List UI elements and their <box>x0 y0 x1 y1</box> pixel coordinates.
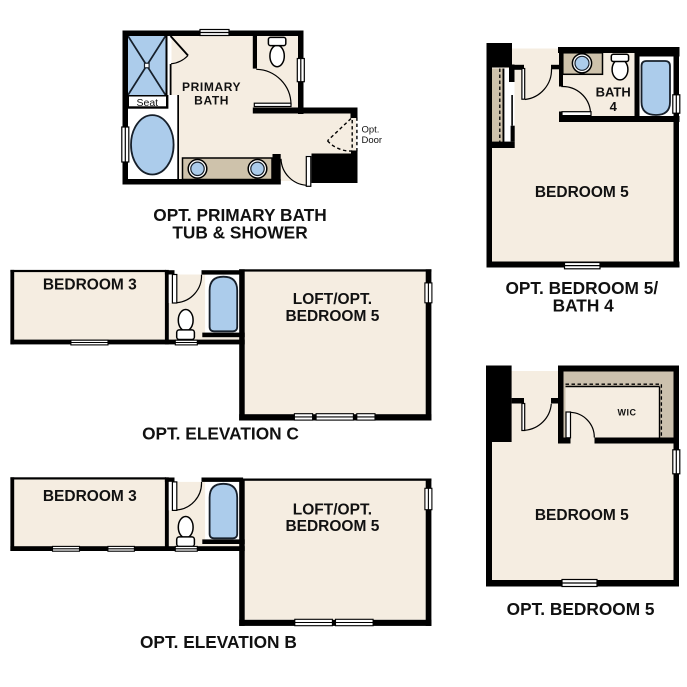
svg-text:OPT. ELEVATION C: OPT. ELEVATION C <box>142 423 299 443</box>
svg-text:4: 4 <box>610 99 618 114</box>
svg-text:BATH: BATH <box>194 93 229 107</box>
svg-text:Opt.: Opt. <box>362 124 380 135</box>
svg-text:WIC: WIC <box>618 407 637 417</box>
svg-text:BEDROOM 5: BEDROOM 5 <box>535 507 629 524</box>
svg-text:BEDROOM 5: BEDROOM 5 <box>285 308 379 325</box>
svg-text:LOFT/OPT.: LOFT/OPT. <box>293 501 372 518</box>
svg-text:Door: Door <box>362 135 383 146</box>
svg-text:BATH: BATH <box>596 85 631 100</box>
svg-text:PRIMARY: PRIMARY <box>182 80 241 94</box>
svg-text:OPT. BEDROOM 5: OPT. BEDROOM 5 <box>507 599 655 619</box>
svg-text:BEDROOM 3: BEDROOM 3 <box>43 488 137 505</box>
svg-text:BEDROOM 3: BEDROOM 3 <box>43 277 137 294</box>
svg-text:BATH 4: BATH 4 <box>553 296 615 316</box>
svg-text:BEDROOM 5: BEDROOM 5 <box>285 518 379 535</box>
svg-text:LOFT/OPT.: LOFT/OPT. <box>293 291 372 308</box>
svg-text:TUB & SHOWER: TUB & SHOWER <box>172 222 308 242</box>
svg-text:BEDROOM 5: BEDROOM 5 <box>535 184 629 201</box>
svg-text:Seat: Seat <box>136 97 158 109</box>
svg-text:OPT. ELEVATION B: OPT. ELEVATION B <box>140 632 297 652</box>
